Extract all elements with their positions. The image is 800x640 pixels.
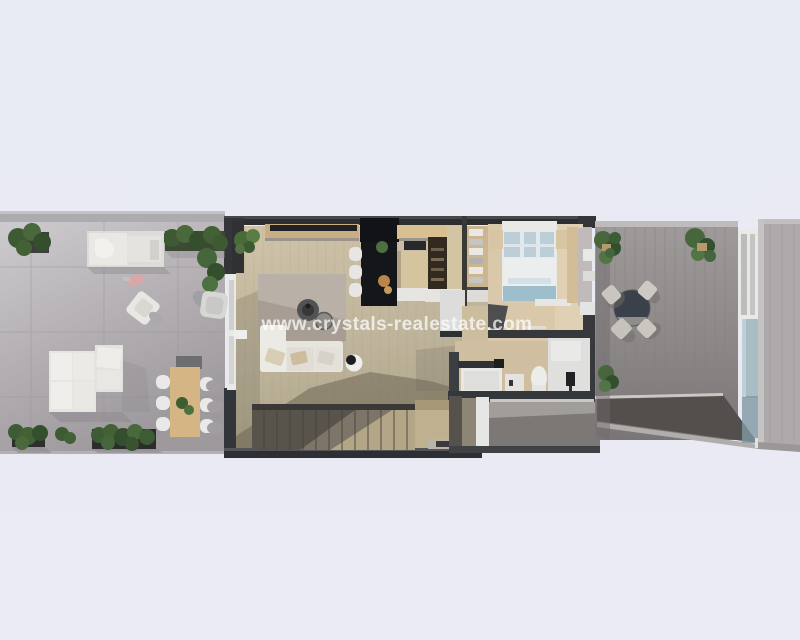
svg-text:www.crystals-realestate.com: www.crystals-realestate.com — [261, 314, 533, 335]
